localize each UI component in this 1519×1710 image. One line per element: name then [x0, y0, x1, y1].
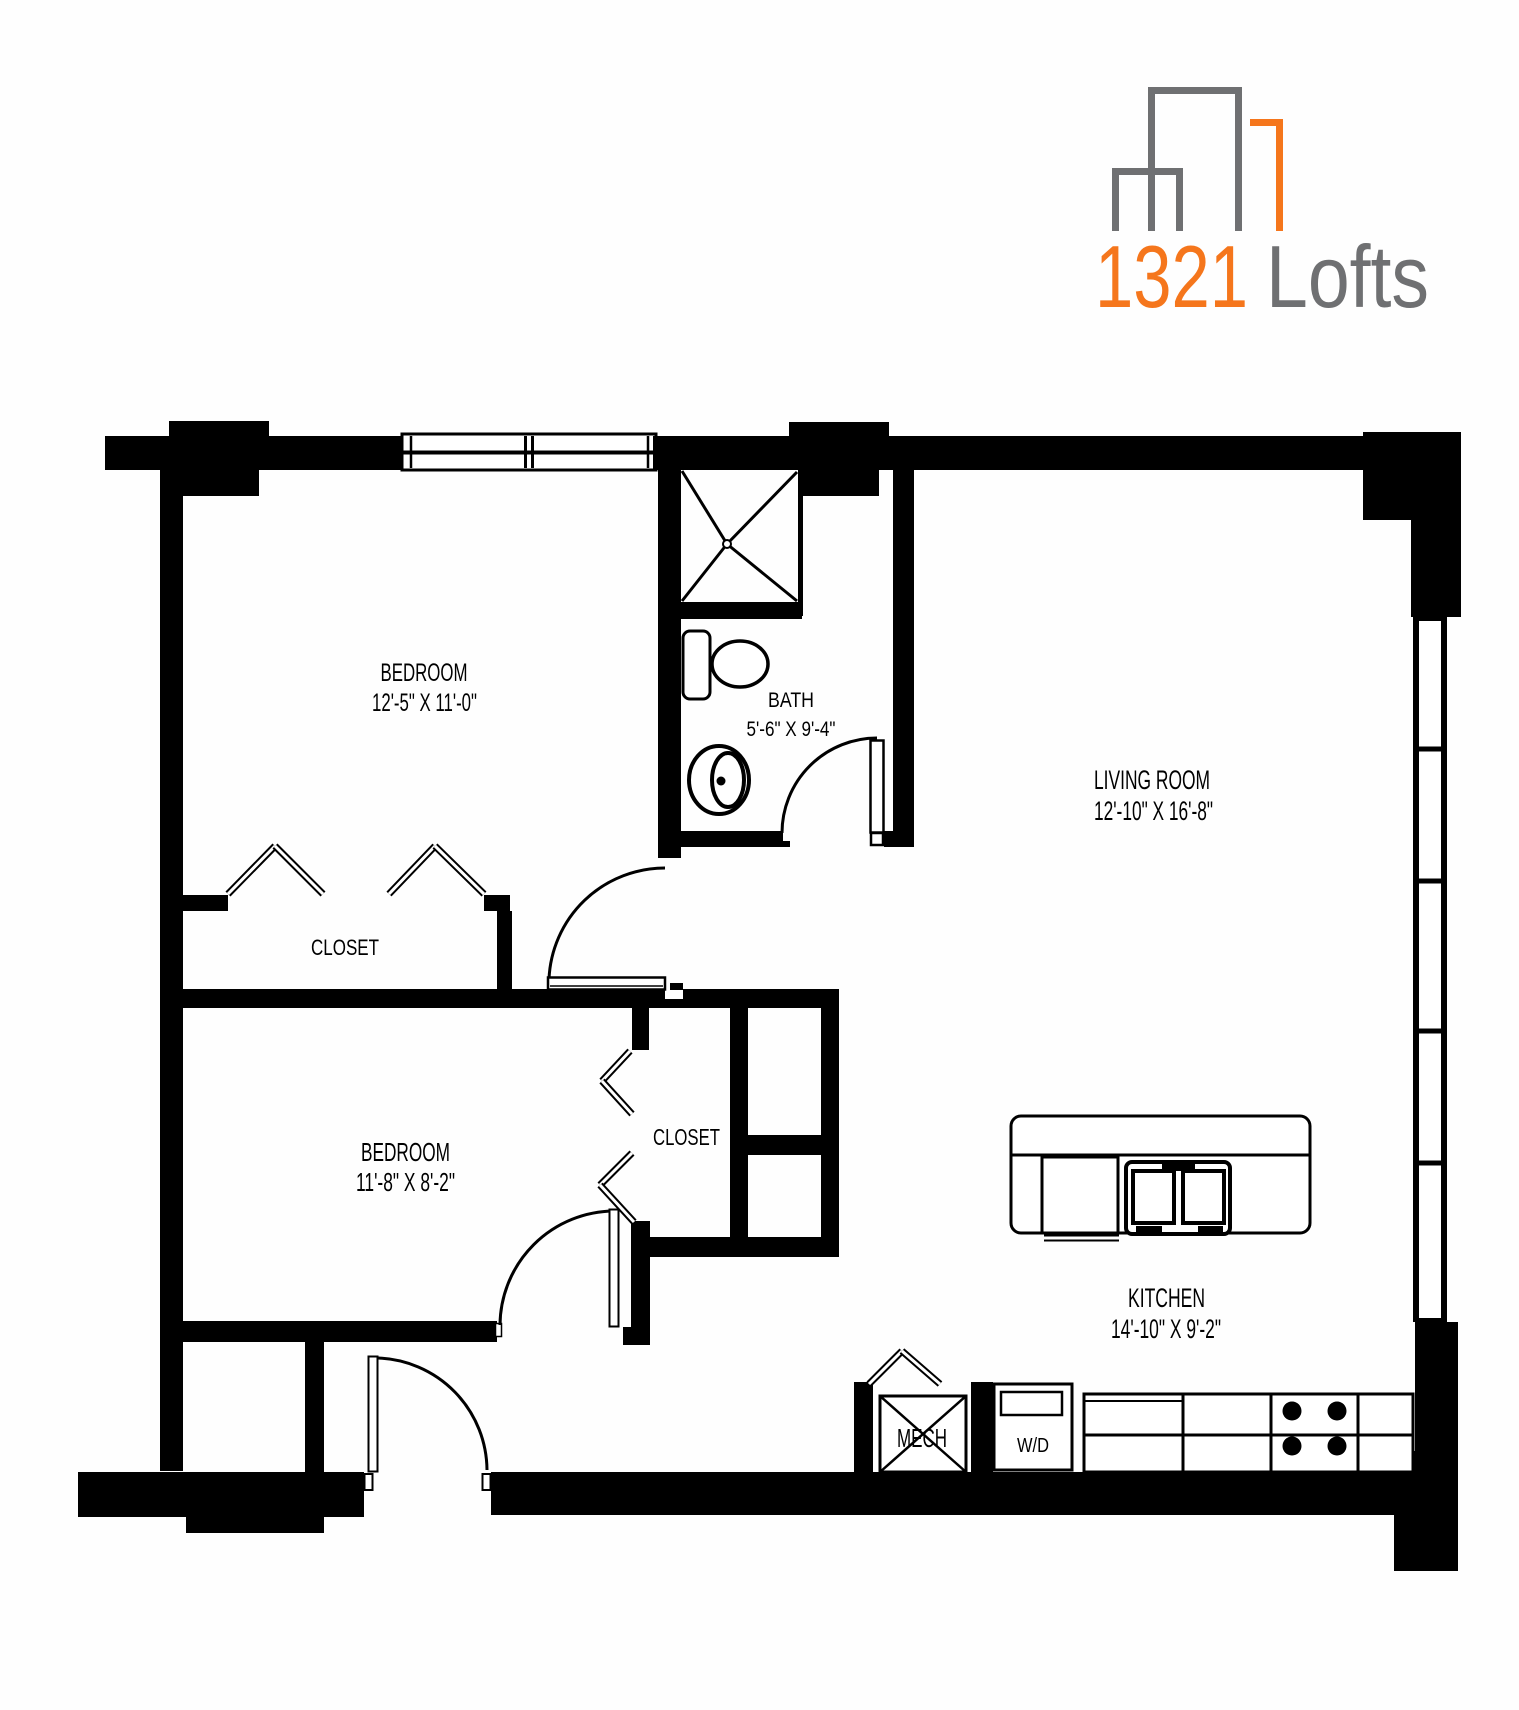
svg-text:12'-10" X 16'-8": 12'-10" X 16'-8" — [1094, 796, 1213, 826]
svg-text:CLOSET: CLOSET — [311, 935, 379, 960]
svg-text:Lofts: Lofts — [1266, 227, 1429, 326]
svg-text:14'-10" X 9'-2": 14'-10" X 9'-2" — [1111, 1314, 1221, 1344]
svg-text:12'-5" X 11'-0": 12'-5" X 11'-0" — [372, 689, 477, 717]
svg-text:BATH: BATH — [768, 689, 814, 712]
svg-text:MECH: MECH — [897, 1423, 947, 1453]
svg-text:BEDROOM: BEDROOM — [381, 659, 468, 687]
svg-text:11'-8" X 8'-2": 11'-8" X 8'-2" — [356, 1167, 455, 1197]
svg-text:W/D: W/D — [1017, 1435, 1049, 1457]
svg-text:LIVING ROOM: LIVING ROOM — [1094, 765, 1210, 795]
svg-text:1321: 1321 — [1095, 227, 1248, 326]
svg-text:5'-6" X 9'-4": 5'-6" X 9'-4" — [747, 718, 836, 741]
svg-text:BEDROOM: BEDROOM — [361, 1137, 450, 1167]
svg-text:KITCHEN: KITCHEN — [1128, 1283, 1205, 1313]
svg-text:CLOSET: CLOSET — [653, 1124, 720, 1150]
